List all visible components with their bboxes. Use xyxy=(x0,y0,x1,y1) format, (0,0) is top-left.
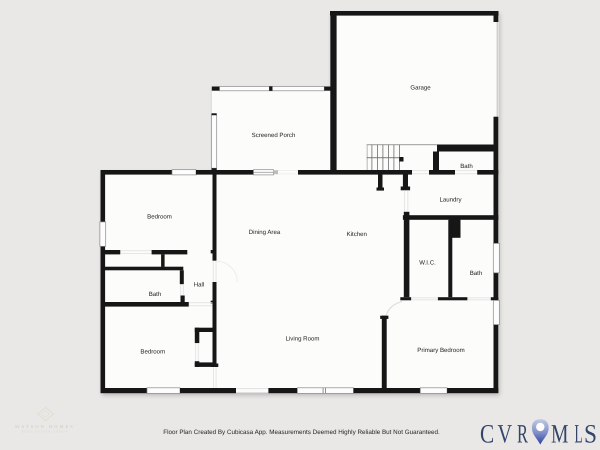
svg-text:M: M xyxy=(551,419,568,449)
svg-text:Bedroom: Bedroom xyxy=(147,213,172,220)
svg-text:Hall: Hall xyxy=(194,281,205,288)
svg-text:Kitchen: Kitchen xyxy=(347,231,367,238)
svg-text:Laundry: Laundry xyxy=(439,196,462,203)
svg-text:Dining Area: Dining Area xyxy=(249,229,281,236)
svg-text:L: L xyxy=(575,419,583,449)
svg-text:W.I.C.: W.I.C. xyxy=(419,259,436,266)
svg-text:V: V xyxy=(498,419,513,449)
svg-text:Bath: Bath xyxy=(470,270,483,277)
svg-text:R: R xyxy=(517,419,528,449)
svg-text:Floor Plan Created By Cubicasa: Floor Plan Created By Cubicasa App. Meas… xyxy=(163,429,440,436)
svg-text:Garage: Garage xyxy=(410,84,431,91)
svg-text:S: S xyxy=(584,419,597,449)
svg-text:REAL ESTATE GROUP: REAL ESTATE GROUP xyxy=(22,431,69,434)
svg-text:Primary Bedroom: Primary Bedroom xyxy=(417,347,464,354)
svg-text:C: C xyxy=(480,419,494,449)
svg-text:Bedroom: Bedroom xyxy=(140,348,165,355)
svg-text:Screened Porch: Screened Porch xyxy=(252,132,296,139)
svg-text:Bath: Bath xyxy=(149,291,162,298)
svg-text:Bath: Bath xyxy=(460,163,473,170)
svg-text:MATSON HOMES: MATSON HOMES xyxy=(15,424,75,429)
svg-text:Living Room: Living Room xyxy=(286,335,320,342)
